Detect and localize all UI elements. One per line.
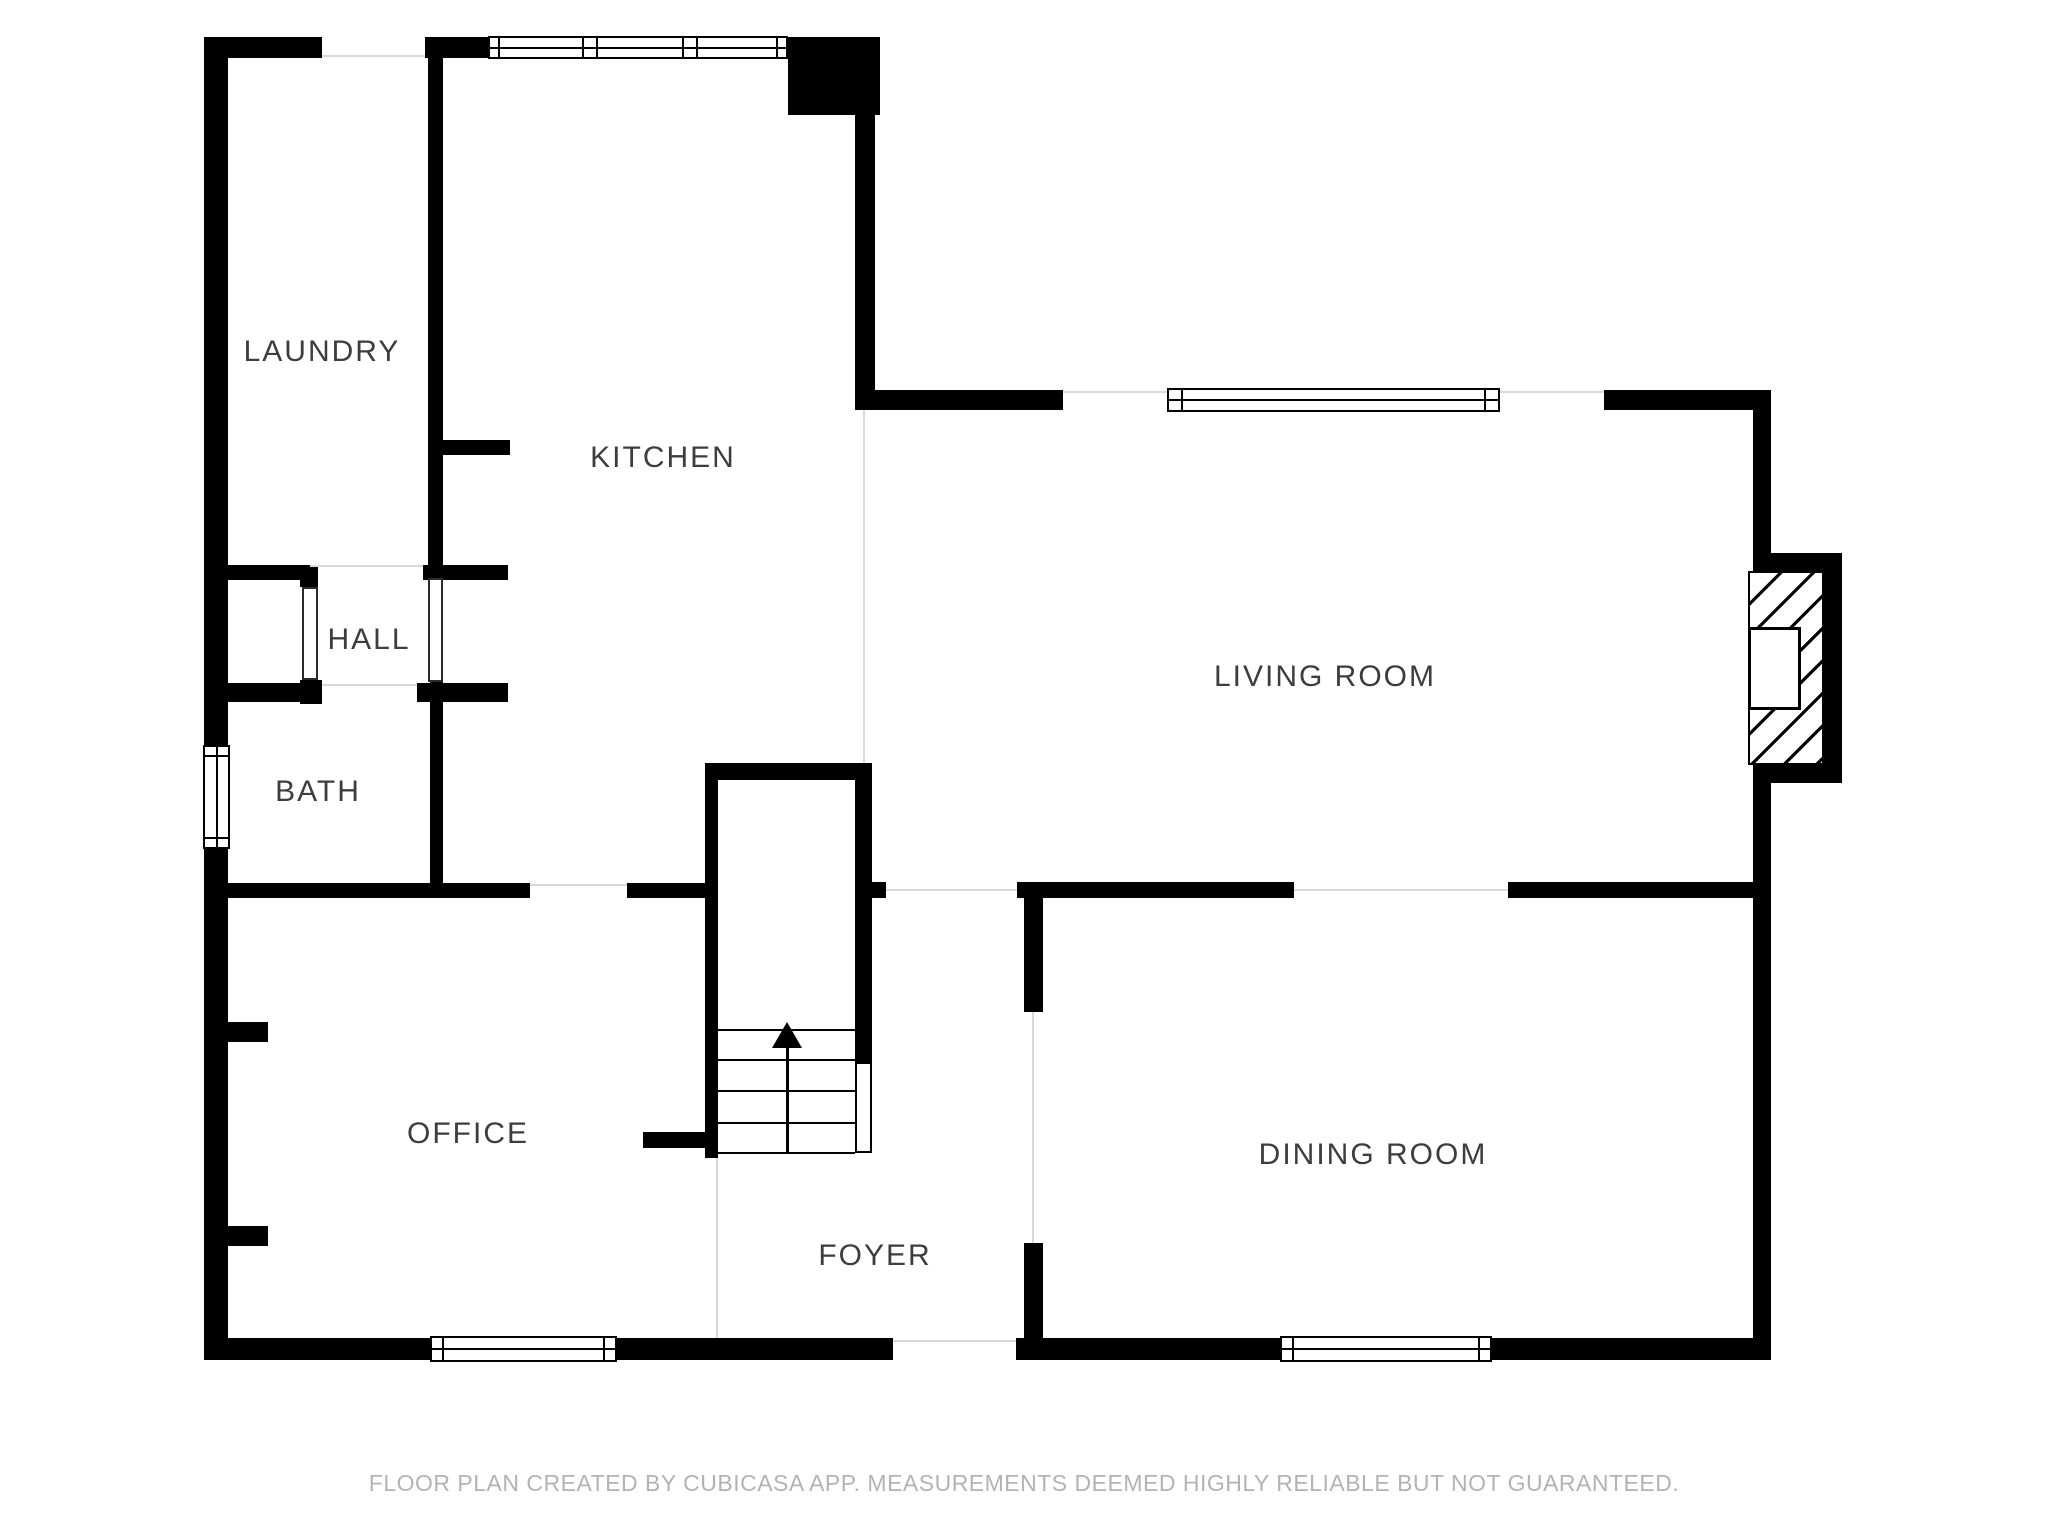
office-left-stub-2 [228,1226,268,1246]
left-wall-lower [204,847,228,1360]
office-closet-stub [643,1132,705,1148]
kitchen-right-wall [855,108,875,392]
window-mullion [696,38,698,57]
stairwell-left-wall [705,780,718,1158]
room-label-hall: HALL [327,623,410,657]
window-jamb [205,755,228,757]
window-mullion [682,38,684,57]
dining-top-nub [872,882,886,898]
window-jamb [1478,1338,1480,1360]
kitchen-living-boundary [863,410,865,763]
bath-window [203,745,230,849]
window-jamb [205,837,228,839]
stair-railing [855,1062,872,1153]
room-label-dining-room: DINING ROOM [1259,1138,1488,1172]
hall-bottom-wall-left [225,683,322,702]
window-pane-line [490,47,786,49]
hall-left-door [302,587,318,680]
kitchen-stub-wall [443,440,510,455]
room-label-living-room: LIVING ROOM [1214,660,1436,694]
stairwell-top-wall [705,763,872,780]
office-door-opening [530,884,627,886]
fireplace-bottom-wall [1753,765,1842,783]
chimney-block [788,37,880,115]
window-jamb [1292,1338,1294,1360]
foyer-living-opening [886,889,1017,891]
left-wall-upper [204,37,228,747]
hall-bottom-opening [322,684,417,686]
bottom-wall-1 [204,1338,430,1360]
office-window [430,1336,617,1362]
hall-top-opening [310,565,423,567]
window-jamb [1484,390,1486,410]
foyer-left-boundary [716,1158,718,1338]
dining-top-wall-right [1508,882,1771,898]
kitchen-window [488,36,788,59]
hall-left-stub-top [300,565,318,587]
hall-top-wall-left [204,565,310,580]
window-pane-line [1282,1348,1490,1350]
window-pane-line [1169,399,1498,401]
window-jamb [498,38,500,57]
dining-room-window [1280,1336,1492,1362]
bottom-wall-3 [1016,1338,1280,1360]
living-door-opening-2 [1500,391,1604,393]
window-jamb [442,1338,444,1360]
window-mullion [582,38,584,57]
stairs-up-arrow-icon [772,1022,802,1048]
fireplace-firebox [1748,627,1801,710]
office-left-stub-1 [228,1022,268,1042]
window-pane-line [432,1348,615,1350]
room-label-bath: BATH [275,775,361,809]
dining-left-wall-lower [1024,1243,1043,1338]
right-wall-upper [1753,392,1771,553]
hall-right-door [428,578,443,682]
window-pane-line [216,747,218,847]
window-jamb [776,38,778,57]
bath-right-wall [430,682,443,898]
window-jamb [1181,390,1183,410]
bottom-wall-2 [617,1338,893,1360]
stair-arrow-shaft [786,1046,789,1153]
living-door-opening-1 [1063,391,1167,393]
living-room-window [1167,388,1500,412]
front-door-opening [893,1340,1016,1342]
foyer-right-boundary [1032,1012,1034,1243]
window-jamb [603,1338,605,1360]
room-label-foyer: FOYER [818,1239,931,1273]
dining-living-opening [1294,889,1508,891]
dining-left-wall-upper [1024,898,1043,1012]
window-mullion [596,38,598,57]
living-top-wall-left [855,390,1063,410]
bottom-wall-4 [1492,1338,1771,1360]
fireplace-right-wall [1824,553,1842,783]
room-label-laundry: LAUNDRY [244,335,401,369]
laundry-door-opening [322,55,425,57]
room-label-kitchen: KITCHEN [590,441,736,475]
right-wall-lower [1753,783,1771,1360]
top-wall-left [204,37,322,58]
floor-plan: LAUNDRY KITCHEN HALL BATH LIVING ROOM OF… [0,0,2048,1536]
disclaimer-text: FLOOR PLAN CREATED BY CUBICASA APP. MEAS… [0,1470,2048,1497]
office-top-wall-left [204,883,530,898]
laundry-kitchen-partition [428,37,443,578]
room-label-office: OFFICE [407,1117,529,1151]
stairwell-right-wall [855,780,872,1062]
dining-top-wall-left [1017,882,1294,898]
living-top-wall-right [1604,390,1771,410]
